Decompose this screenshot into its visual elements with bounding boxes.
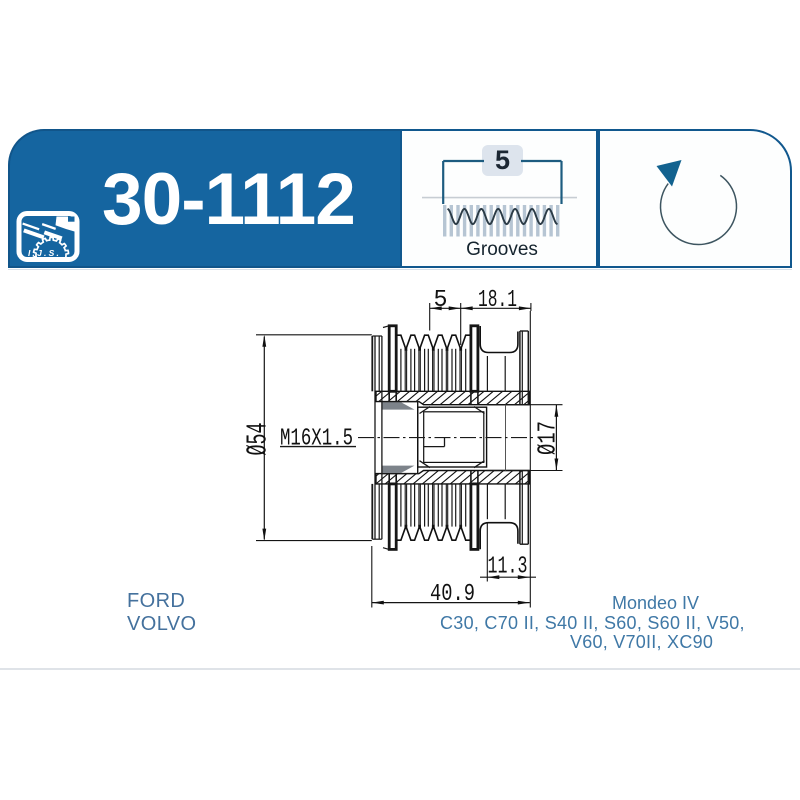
- svg-text:M16X1.5: M16X1.5: [280, 425, 353, 452]
- svg-text:40.9: 40.9: [430, 581, 475, 608]
- svg-text:Ø17: Ø17: [533, 421, 563, 455]
- svg-text:Ø54: Ø54: [242, 423, 275, 456]
- svg-text:18.1: 18.1: [478, 287, 517, 314]
- svg-text:11.3: 11.3: [488, 554, 528, 581]
- svg-text:5: 5: [434, 287, 448, 314]
- svg-text:I.J.S.: I.J.S.: [28, 248, 61, 258]
